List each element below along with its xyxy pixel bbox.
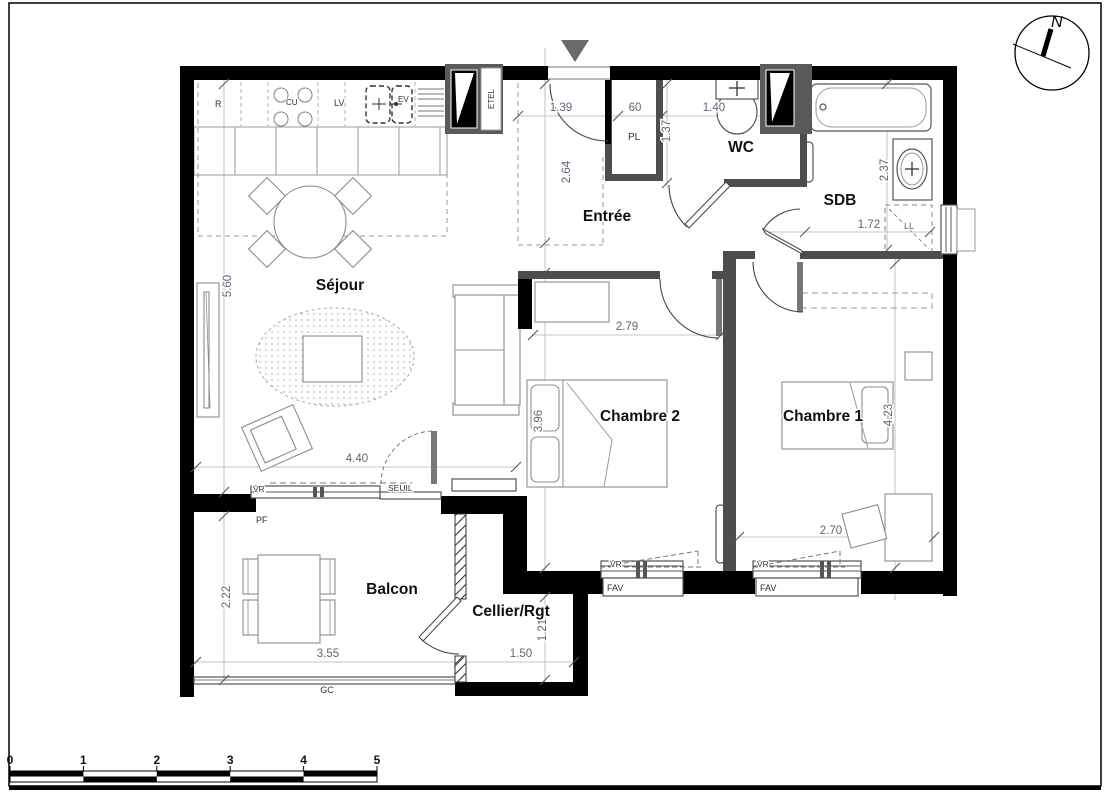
- rug-icon: [256, 308, 414, 406]
- floor-plan-page: R CU LV EV: [0, 0, 1110, 800]
- dish-rack-icon: [418, 89, 444, 116]
- armchair-icon: [242, 405, 313, 472]
- seuil-label: SEUIL: [388, 483, 413, 493]
- balcony-furniture: [243, 555, 335, 643]
- sejour-window-bench: [452, 479, 516, 491]
- ch2-door-jamb: [712, 271, 723, 279]
- wall-right-upper: [943, 66, 957, 207]
- dim-sdb-width: 1.72: [858, 219, 880, 231]
- wall-south-c: [861, 571, 957, 594]
- dim-entree-depth: 2.64: [561, 160, 573, 183]
- bathtub-icon: [811, 84, 931, 131]
- sejour-label: Séjour: [316, 277, 364, 294]
- sejour-furniture: [197, 178, 520, 472]
- wc-wall-south: [724, 179, 807, 187]
- sdb-side-window: [941, 205, 975, 254]
- ch2-dresser-icon: [535, 282, 609, 322]
- hatched-wall-upper: [455, 514, 466, 599]
- dim-closet-width: 60: [629, 102, 642, 114]
- gc-label: GC: [320, 685, 334, 695]
- dim-sejour-width: 4.40: [346, 453, 368, 465]
- dishwasher-label: LV: [334, 98, 344, 108]
- sink-icon: [366, 86, 412, 123]
- hall-wall-b: [800, 251, 943, 259]
- etel-label: ETEL: [487, 88, 496, 109]
- wall-balcony-west: [180, 513, 194, 697]
- scale-bar: 0 1 2 3 4 5: [7, 753, 381, 782]
- balcony-guardrail: [194, 677, 455, 684]
- hall-wall-a: [723, 251, 755, 259]
- scale-5: 5: [374, 753, 381, 767]
- hob-label: CU: [286, 98, 298, 107]
- dim-ch2-width: 2.79: [616, 321, 638, 333]
- wc-window: [760, 64, 812, 134]
- sdb-label: SDB: [824, 192, 857, 209]
- pf-label: PF: [256, 515, 268, 525]
- sofa-icon: [453, 285, 520, 415]
- north-label: N: [1051, 14, 1063, 31]
- ch1-desk-icon: [885, 494, 932, 561]
- wall-right-lower: [943, 252, 957, 596]
- ch1-chair-icon: [842, 505, 887, 548]
- wall-sejour-south-b: [441, 496, 527, 514]
- dim-ch2-depth: 3.96: [533, 410, 545, 432]
- dim-sejour-depth: 5.60: [222, 275, 234, 297]
- vr-ch1-label: VR: [757, 559, 769, 569]
- cellier-partition: [419, 514, 466, 682]
- scale-1: 1: [80, 753, 87, 767]
- dim-ch1-depth: 4.23: [883, 404, 895, 426]
- wall-left: [180, 66, 194, 513]
- ch2-door: [660, 279, 722, 338]
- wall-ch2-corner-post: [518, 271, 532, 329]
- wall-cellier-south: [455, 682, 588, 696]
- dim-entry-width: 1.39: [550, 102, 572, 114]
- scale-4: 4: [300, 753, 307, 767]
- fav-ch2-label: FAV: [607, 583, 623, 593]
- ch1-nightstand-icon: [905, 352, 932, 380]
- scale-3: 3: [227, 753, 234, 767]
- fridge-label: R: [215, 99, 222, 109]
- entree-label: Entrée: [583, 208, 632, 225]
- chambre1-label: Chambre 1: [783, 408, 863, 425]
- ch1-wardrobe-icon: [802, 293, 932, 308]
- fav-ch1-label: FAV: [760, 583, 776, 593]
- dining-table-icon: [249, 178, 372, 268]
- ch2-double-bed-icon: [527, 380, 667, 487]
- north-compass-icon: N: [1013, 14, 1089, 90]
- sink-label: EV: [398, 95, 409, 104]
- dim-balcon-width: 3.55: [317, 648, 339, 660]
- wall-cellier-east: [573, 594, 588, 682]
- balcon-label: Balcon: [366, 581, 418, 598]
- pl-label: PL: [628, 132, 641, 143]
- closet-wall-south: [605, 174, 663, 181]
- wc-door: [669, 182, 730, 228]
- dim-cellier-depth: 1.21: [537, 619, 549, 641]
- floor-plan-drawing: R CU LV EV: [0, 0, 1110, 800]
- cellier-door-arc: [421, 639, 459, 654]
- chambre2-label: Chambre 2: [600, 408, 680, 425]
- wc-label: WC: [728, 139, 754, 156]
- entrance-arrow-icon: [561, 40, 589, 62]
- cellier-label: Cellier/Rgt: [472, 603, 550, 620]
- dim-sdb-depth: 2.37: [879, 159, 891, 181]
- ch1-door: [753, 262, 803, 312]
- dim-ch1-width: 2.70: [820, 525, 842, 537]
- dim-balcon-depth: 2.22: [221, 586, 233, 608]
- hob-burners-icon: [274, 88, 312, 126]
- seuil-threshold: [380, 492, 441, 499]
- vr-ch2-label: VR: [610, 559, 622, 569]
- kitchen-cabinet-row: [194, 127, 447, 175]
- kitchen-window: ETEL: [445, 64, 503, 134]
- wall-sejour-south-a: [180, 494, 256, 512]
- scale-0: 0: [7, 753, 14, 767]
- wc-wall-east: [800, 128, 807, 184]
- cellier-door-leaf: [419, 597, 461, 641]
- tv-cabinet-icon: [197, 283, 219, 417]
- ll-label: LL: [904, 221, 914, 231]
- dim-closet-depth: 1.37: [661, 120, 673, 142]
- dim-wc-width: 1.40: [703, 102, 725, 114]
- wall-south-a: [503, 571, 603, 594]
- scale-2: 2: [153, 753, 160, 767]
- wall-south-b: [681, 571, 755, 594]
- washbasin-icon: [893, 139, 932, 200]
- balcony-table-icon: [258, 555, 320, 643]
- dim-cellier-width: 1.50: [510, 648, 532, 660]
- bathroom-fixtures: [716, 78, 932, 252]
- chambre1-furniture: [782, 293, 932, 561]
- ch2-north-wall: [518, 271, 660, 279]
- bedroom-divider-wall: [723, 259, 736, 571]
- vr-sejour-label: VR: [253, 484, 265, 494]
